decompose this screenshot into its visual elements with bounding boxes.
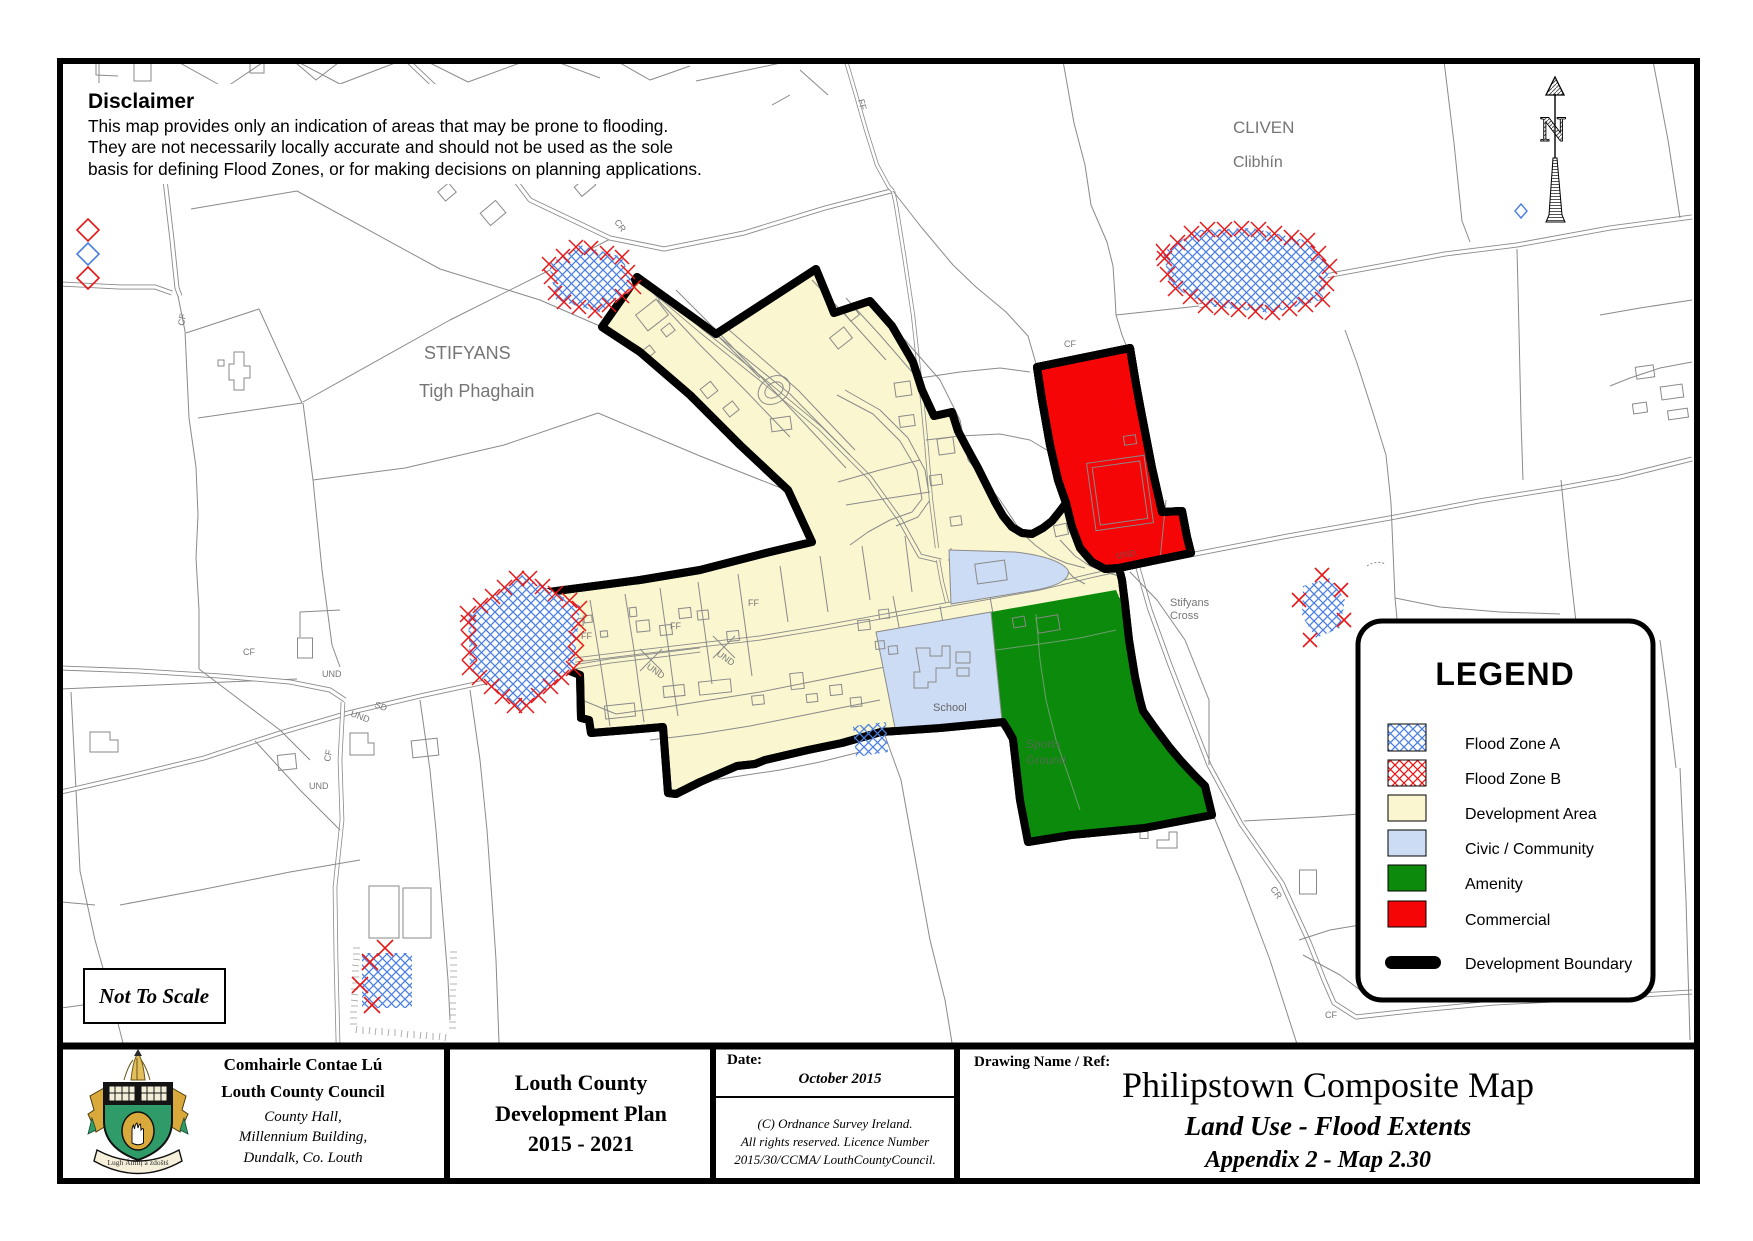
svg-text:Millennium Building,: Millennium Building, [238, 1129, 367, 1145]
svg-text:2015 - 2021: 2015 - 2021 [528, 1131, 634, 1156]
svg-text:CF: CF [322, 748, 334, 762]
svg-text:Louth County: Louth County [515, 1070, 648, 1095]
svg-text:FF: FF [748, 598, 759, 608]
svg-text:October 2015: October 2015 [799, 1071, 882, 1087]
svg-text:Sports: Sports [1026, 737, 1061, 751]
svg-text:CF: CF [176, 312, 188, 326]
svg-text:Cross: Cross [1170, 610, 1199, 622]
svg-text:Lugh Áimiļ a żdoŝŧś: Lugh Áimiļ a żdoŝŧś [107, 1157, 168, 1168]
svg-text:Amenity: Amenity [1465, 876, 1523, 893]
svg-text:UND: UND [309, 781, 329, 791]
svg-text:Dundalk, Co. Louth: Dundalk, Co. Louth [242, 1150, 362, 1166]
svg-text:FF: FF [670, 621, 681, 631]
svg-text:Stifyans: Stifyans [1170, 597, 1210, 609]
svg-text:Clibhín: Clibhín [1233, 154, 1283, 171]
svg-text:Appendix 2 - Map 2.30: Appendix 2 - Map 2.30 [1203, 1147, 1431, 1173]
svg-text:Disclaimer: Disclaimer [88, 90, 194, 113]
svg-text:Flood Zone A: Flood Zone A [1465, 736, 1561, 753]
svg-text:STIFYANS: STIFYANS [424, 343, 511, 363]
svg-text:2015/30/CCMA/ LouthCountyCounc: 2015/30/CCMA/ LouthCountyCouncil. [734, 1152, 936, 1167]
svg-text:Drawing Name / Ref:: Drawing Name / Ref: [974, 1054, 1110, 1070]
svg-text:County Hall,: County Hall, [264, 1109, 342, 1125]
svg-text:basis for defining Flood Zones: basis for defining Flood Zones, or for m… [88, 159, 702, 179]
svg-text:Louth County Council: Louth County Council [221, 1082, 385, 1101]
svg-text:They are not necessarily local: They are not necessarily locally accurat… [88, 137, 673, 157]
svg-text:All rights reserved. Licence N: All rights reserved. Licence Number [740, 1134, 930, 1149]
svg-text:Development Boundary: Development Boundary [1465, 956, 1632, 973]
svg-text:UND: UND [322, 669, 342, 679]
svg-text:Commercial: Commercial [1465, 912, 1550, 929]
svg-text:Flood Zone B: Flood Zone B [1465, 771, 1561, 788]
svg-text:CF: CF [243, 647, 255, 657]
svg-text:Philipstown Composite Map: Philipstown Composite Map [1122, 1065, 1534, 1105]
svg-text:CF: CF [1325, 1010, 1337, 1020]
svg-text:Land Use - Flood Extents: Land Use - Flood Extents [1184, 1111, 1472, 1141]
svg-text:Not To Scale: Not To Scale [98, 984, 209, 1008]
svg-text:Civic / Community: Civic / Community [1465, 841, 1594, 858]
svg-text:Development Plan: Development Plan [495, 1101, 667, 1126]
svg-text:Date:: Date: [727, 1052, 762, 1068]
svg-text:Comhairle Contae Lú: Comhairle Contae Lú [224, 1055, 383, 1074]
svg-text:School: School [933, 702, 967, 714]
svg-text:FF: FF [581, 631, 592, 641]
svg-text:(C) Ordnance Survey Ireland.: (C) Ordnance Survey Ireland. [758, 1116, 913, 1131]
svg-text:LEGEND: LEGEND [1435, 656, 1574, 692]
svg-text:N: N [1540, 109, 1566, 149]
svg-text:CF: CF [1064, 339, 1076, 349]
svg-text:CLIVEN: CLIVEN [1233, 118, 1294, 137]
svg-text:Tigh Phaghain: Tigh Phaghain [419, 381, 534, 401]
svg-text:Development Area: Development Area [1465, 806, 1597, 823]
svg-text:Ground: Ground [1026, 753, 1066, 767]
svg-text:This map provides only an indi: This map provides only an indication of … [88, 116, 668, 136]
